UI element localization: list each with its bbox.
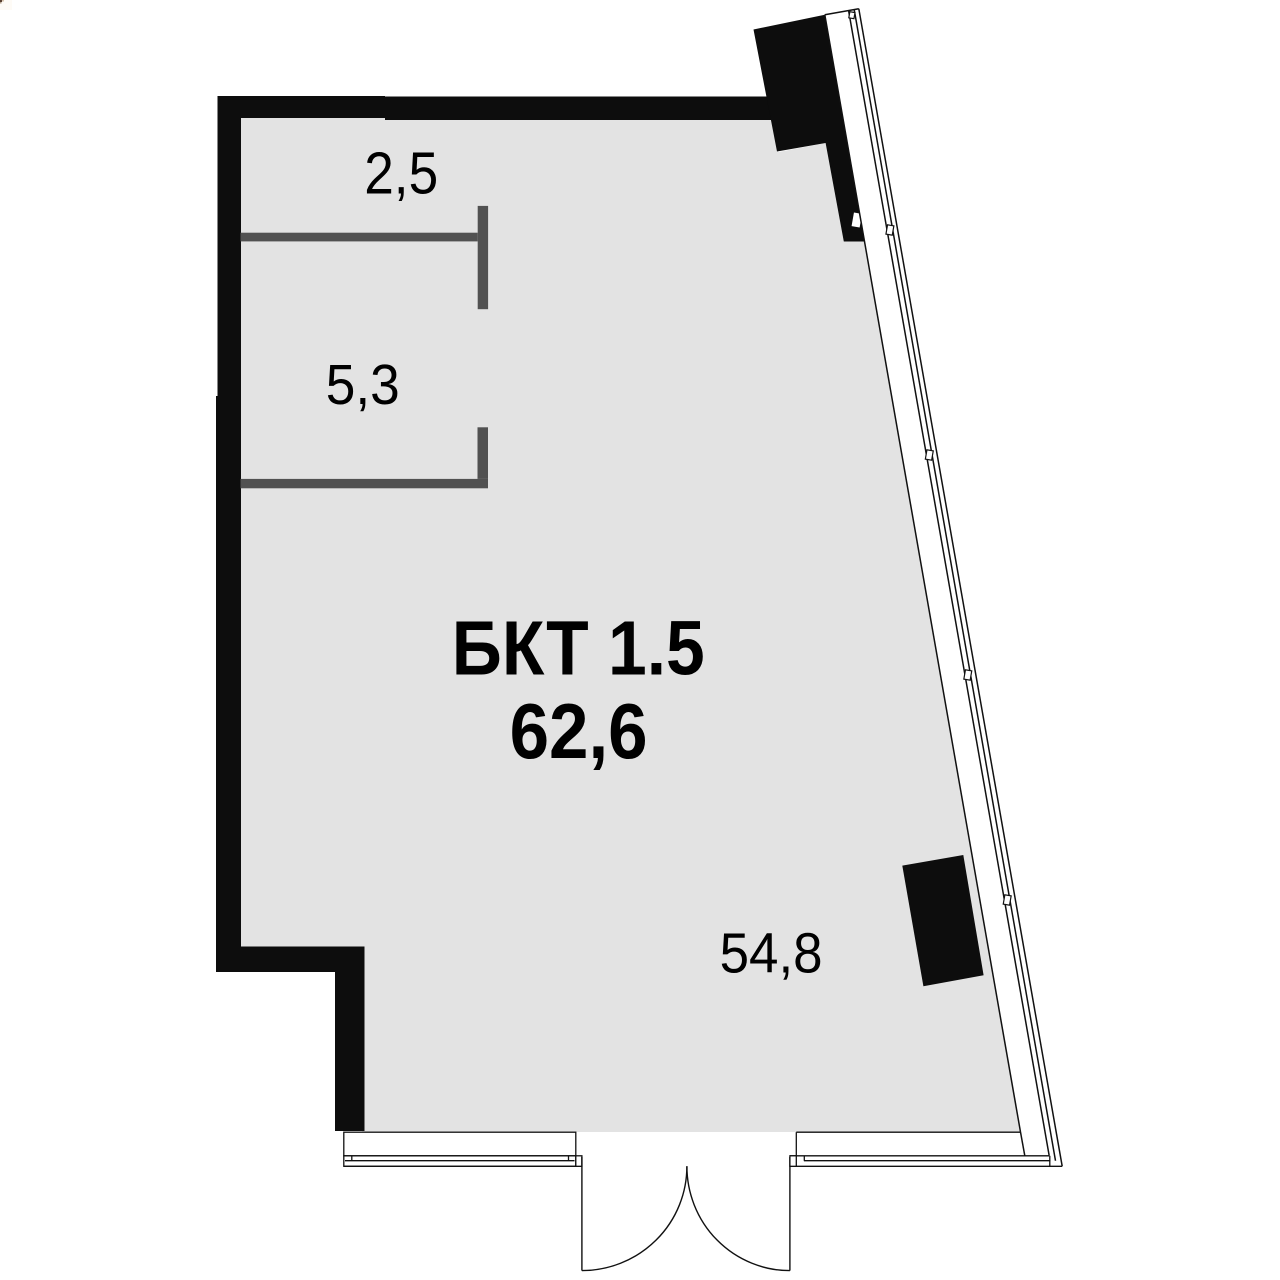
svg-text:5,3: 5,3 xyxy=(326,353,400,417)
svg-text:2,5: 2,5 xyxy=(364,141,438,207)
svg-text:БКТ 1.5: БКТ 1.5 xyxy=(452,606,705,692)
svg-text:62,6: 62,6 xyxy=(510,689,648,775)
svg-text:54,8: 54,8 xyxy=(720,922,823,986)
